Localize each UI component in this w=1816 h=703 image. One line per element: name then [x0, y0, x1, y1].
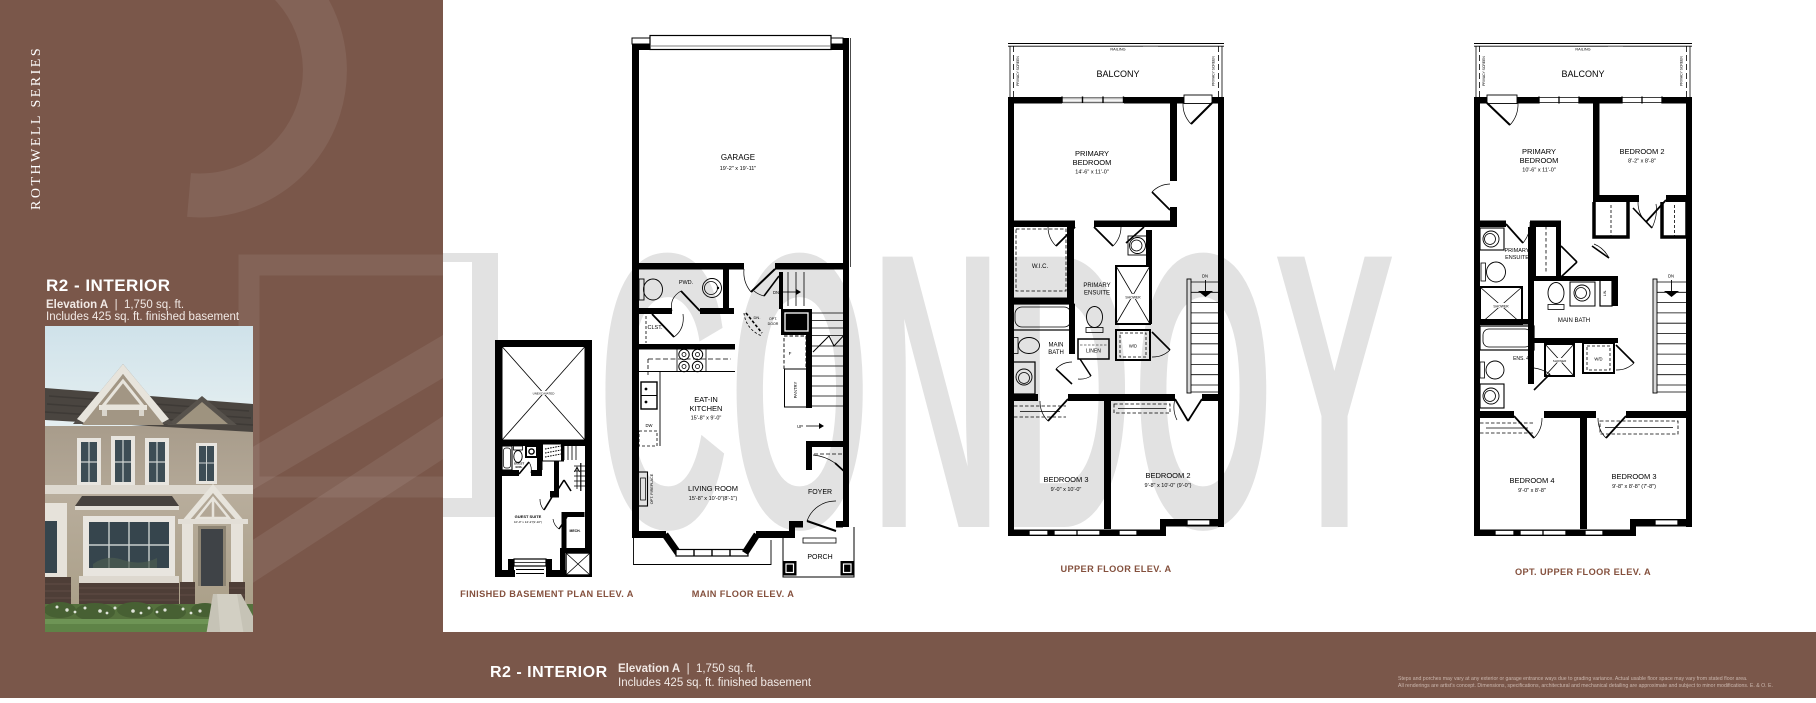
svg-text:10'-0" x 14'-2"(9'-10"): 10'-0" x 14'-2"(9'-10") [514, 520, 542, 524]
svg-text:RAILING: RAILING [1575, 48, 1590, 52]
svg-text:FINISHED BASEMENT PLAN ELEV. A: FINISHED BASEMENT PLAN ELEV. A [460, 589, 634, 599]
svg-text:PRIVACY SCREEN: PRIVACY SCREEN [1482, 56, 1486, 86]
svg-text:UP: UP [797, 424, 803, 429]
svg-text:8'-2" x 8'-8": 8'-2" x 8'-8" [1628, 159, 1656, 165]
svg-text:PORCH: PORCH [807, 554, 832, 561]
svg-text:PANTRY: PANTRY [793, 381, 798, 398]
svg-text:PRIMARY: PRIMARY [1505, 248, 1530, 254]
svg-text:ENSUITE: ENSUITE [1084, 291, 1110, 297]
svg-text:BEDROOM 4: BEDROOM 4 [1509, 476, 1554, 485]
svg-text:CLST.: CLST. [648, 325, 663, 331]
svg-text:10'-6" x 11'-0": 10'-6" x 11'-0" [1522, 168, 1555, 174]
svg-text:BALCONY: BALCONY [1096, 69, 1139, 79]
svg-text:14'-6" x 11'-0": 14'-6" x 11'-0" [1075, 170, 1108, 176]
svg-text:RAILING: RAILING [1110, 48, 1125, 52]
svg-text:DN.: DN. [754, 315, 761, 320]
svg-text:9'-8" x 8'-8" (7'-8"): 9'-8" x 8'-8" (7'-8") [1612, 484, 1656, 490]
svg-text:15'-8" x 9'-0": 15'-8" x 9'-0" [691, 416, 722, 422]
svg-text:DN: DN [773, 290, 779, 295]
svg-text:LIVING ROOM: LIVING ROOM [688, 484, 738, 493]
svg-text:PWD.: PWD. [679, 280, 694, 286]
svg-text:OPT.: OPT. [769, 317, 777, 321]
svg-text:W/D: W/D [1129, 344, 1137, 349]
svg-text:9'-8" x 10'-0" (9'-0"): 9'-8" x 10'-0" (9'-0") [1145, 483, 1192, 489]
svg-text:DN: DN [1202, 274, 1208, 279]
svg-text:GARAGE: GARAGE [721, 153, 755, 162]
svg-text:F: F [789, 351, 792, 356]
svg-text:SHOWER: SHOWER [1493, 305, 1509, 309]
svg-text:SHOWER: SHOWER [1125, 296, 1141, 300]
svg-text:DW: DW [646, 423, 653, 428]
svg-text:BEDROOM: BEDROOM [1073, 158, 1112, 167]
svg-text:PRIVACY SCREEN: PRIVACY SCREEN [1680, 56, 1684, 86]
svg-text:EAT-IN: EAT-IN [694, 395, 718, 404]
svg-text:BEDROOM 2: BEDROOM 2 [1619, 147, 1664, 156]
svg-text:LIN.: LIN. [1603, 290, 1607, 296]
svg-text:19'-2" x 19'-11": 19'-2" x 19'-11" [720, 166, 757, 172]
svg-text:BEDROOM 3: BEDROOM 3 [1611, 472, 1656, 481]
svg-text:PRIMARY: PRIMARY [1522, 147, 1556, 156]
svg-text:UPPER FLOOR ELEV. A: UPPER FLOOR ELEV. A [1060, 564, 1171, 574]
svg-text:OPT. FIREPLACE: OPT. FIREPLACE [650, 473, 654, 504]
svg-text:PRIVACY SCREEN: PRIVACY SCREEN [1212, 56, 1216, 86]
svg-text:KITCHEN: KITCHEN [690, 404, 723, 413]
svg-text:PRIMARY: PRIMARY [1083, 283, 1110, 289]
svg-text:15'-8" x 10'-0"(8'-1"): 15'-8" x 10'-0"(8'-1") [689, 496, 738, 502]
svg-text:BEDROOM 3: BEDROOM 3 [1043, 475, 1088, 484]
svg-text:ENS.: ENS. [515, 465, 522, 469]
svg-text:MAIN: MAIN [1049, 343, 1064, 349]
svg-text:9'-0" x 8'-8": 9'-0" x 8'-8" [1518, 488, 1546, 494]
svg-text:MAIN BATH: MAIN BATH [1558, 318, 1590, 324]
svg-text:SHOWER: SHOWER [1553, 359, 1567, 363]
svg-text:ENS. 4: ENS. 4 [1513, 356, 1529, 362]
svg-text:BEDROOM 2: BEDROOM 2 [1145, 471, 1190, 480]
svg-text:DOOR: DOOR [768, 322, 779, 326]
svg-text:PRIMARY: PRIMARY [1075, 149, 1109, 158]
svg-text:LINEN: LINEN [1086, 349, 1101, 355]
svg-text:GUEST SUITE: GUEST SUITE [515, 514, 542, 519]
svg-text:BALCONY: BALCONY [1561, 69, 1604, 79]
svg-text:MECH.: MECH. [570, 529, 581, 533]
svg-text:PRIVACY SCREEN: PRIVACY SCREEN [1016, 56, 1020, 86]
svg-text:W/D: W/D [1594, 357, 1602, 362]
svg-text:ENSUITE: ENSUITE [1505, 255, 1529, 261]
svg-text:BEDROOM: BEDROOM [1520, 156, 1559, 165]
svg-text:MAIN FLOOR ELEV. A: MAIN FLOOR ELEV. A [692, 589, 794, 599]
svg-text:BATH: BATH [1048, 350, 1064, 356]
svg-text:OPT. UPPER FLOOR ELEV. A: OPT. UPPER FLOOR ELEV. A [1515, 567, 1651, 577]
svg-text:9'-0" x 10'-0": 9'-0" x 10'-0" [1051, 487, 1082, 493]
svg-text:UNEXCAVATED: UNEXCAVATED [533, 392, 556, 396]
svg-text:FOYER: FOYER [808, 489, 832, 496]
svg-text:DN: DN [1668, 274, 1674, 279]
svg-text:W.I.C.: W.I.C. [1032, 264, 1049, 270]
